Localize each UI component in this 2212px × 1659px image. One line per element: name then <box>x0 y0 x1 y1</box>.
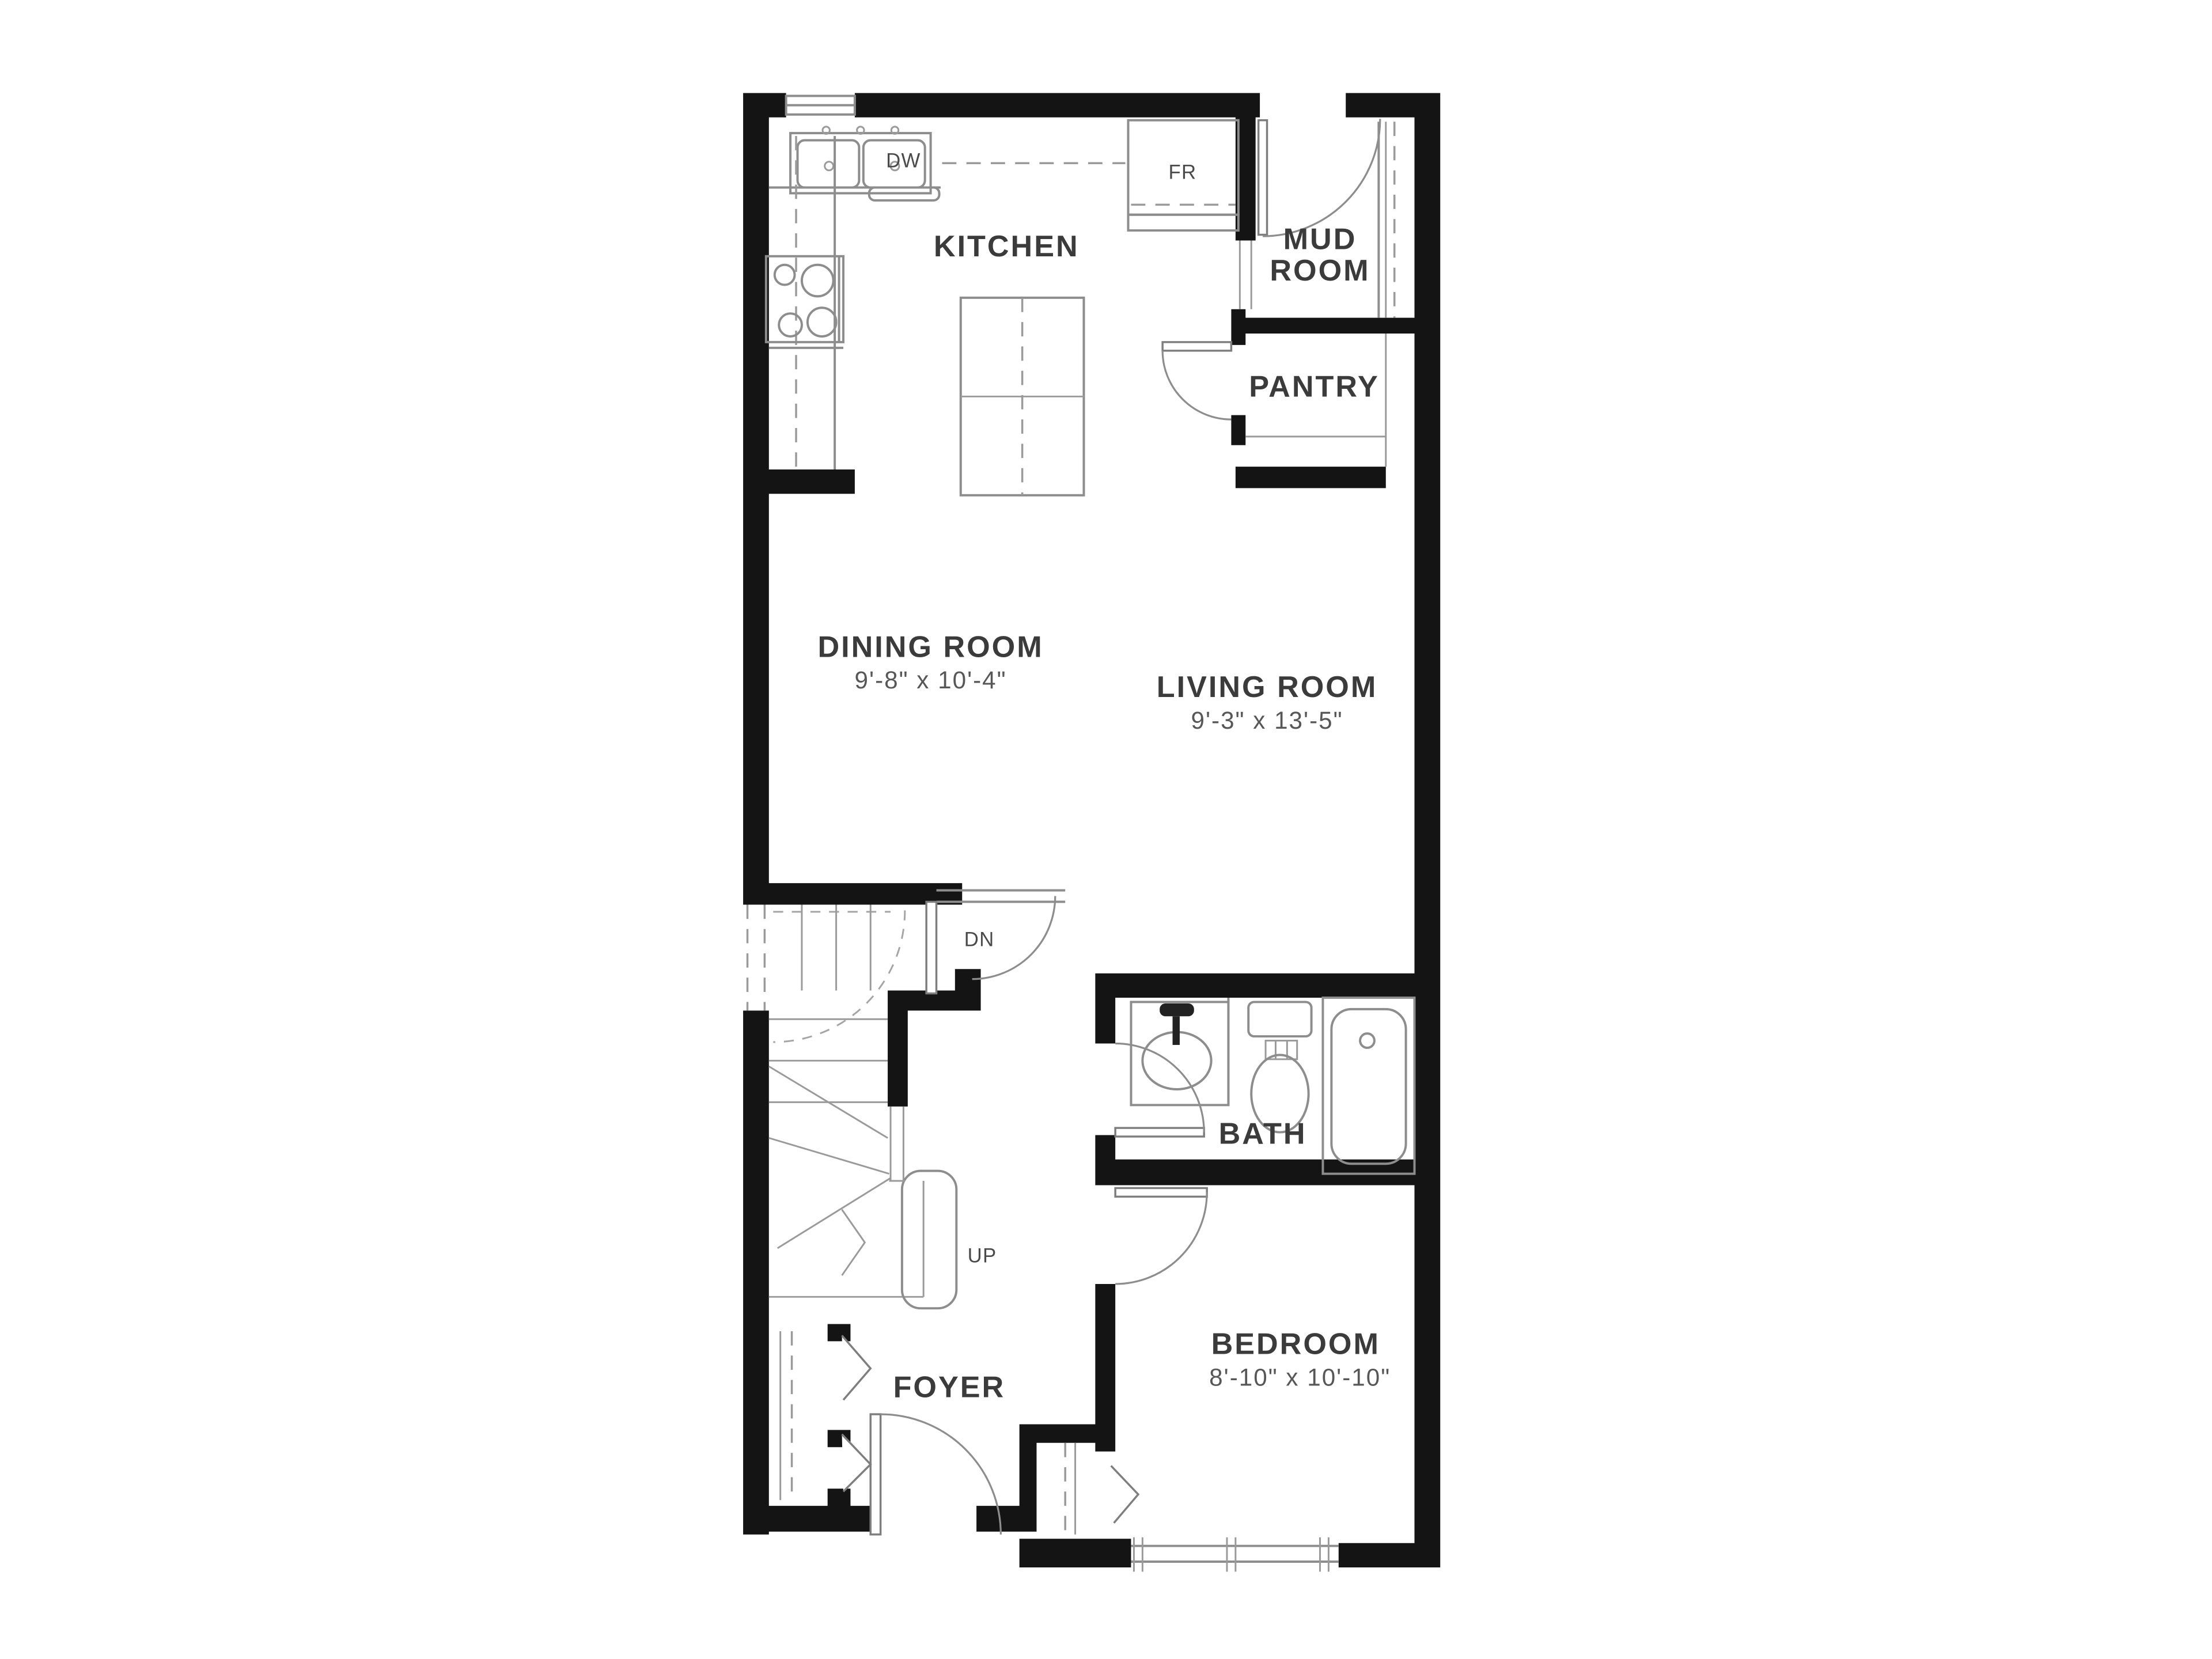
room-label-dining: DINING ROOM <box>817 631 1043 664</box>
bedroom-closet <box>1065 1443 1138 1535</box>
room-label-pantry: PANTRY <box>1249 370 1380 403</box>
room-label-kitchen: KITCHEN <box>934 230 1080 263</box>
up-run-rail <box>889 1171 957 1309</box>
kitchen-island <box>961 298 1084 495</box>
toilet-icon <box>1248 1002 1311 1132</box>
pantry-door <box>1162 342 1231 419</box>
hidden-door-arc <box>773 910 905 1042</box>
stair-landing-window <box>748 904 891 1010</box>
room-dims-living: 9'-3" x 13'-5" <box>1191 707 1343 734</box>
stair-door-dn <box>926 891 1065 994</box>
floor-plan-canvas: KITCHEN MUD ROOM PANTRY DINING ROOM 9'-8… <box>0 0 2212 1659</box>
annotation-stairs-up: UP <box>968 1245 997 1267</box>
room-label-bedroom: BEDROOM <box>1211 1328 1380 1361</box>
annotation-fridge: FR <box>1169 162 1197 184</box>
bedroom-door <box>1115 1188 1207 1283</box>
kitchen-fixtures <box>766 120 1238 495</box>
winder-arrow <box>842 1210 865 1275</box>
room-dims-bedroom: 8'-10" x 10'-10" <box>1209 1363 1391 1391</box>
mud-room-bench <box>1378 122 1394 317</box>
room-dims-dining: 9'-8" x 10'-4" <box>855 666 1007 694</box>
mud-room-fixtures <box>1240 119 1394 317</box>
kitchen-window <box>786 96 855 114</box>
annotation-dishwasher: DW <box>886 150 921 172</box>
room-label-mud-room-line1: MUD <box>1283 222 1357 256</box>
room-label-living: LIVING ROOM <box>1157 671 1378 704</box>
annotation-stairs-down: DN <box>964 929 995 951</box>
stove-icon <box>766 256 843 348</box>
bedroom-window <box>1131 1537 1338 1572</box>
floor-plan: KITCHEN MUD ROOM PANTRY DINING ROOM 9'-8… <box>0 0 2212 1659</box>
mud-room-door <box>1259 119 1380 236</box>
bath-door <box>1115 1043 1204 1137</box>
labels: KITCHEN MUD ROOM PANTRY DINING ROOM 9'-8… <box>817 150 1391 1404</box>
room-label-foyer: FOYER <box>893 1370 1006 1404</box>
bathtub-icon <box>1323 998 1414 1174</box>
room-label-mud-room-line2: ROOM <box>1270 254 1370 287</box>
foyer-closet <box>781 1331 871 1500</box>
bath-vanity-sink-icon <box>1131 998 1228 1105</box>
stairs <box>769 891 1065 1309</box>
room-label-bath: BATH <box>1219 1117 1307 1150</box>
